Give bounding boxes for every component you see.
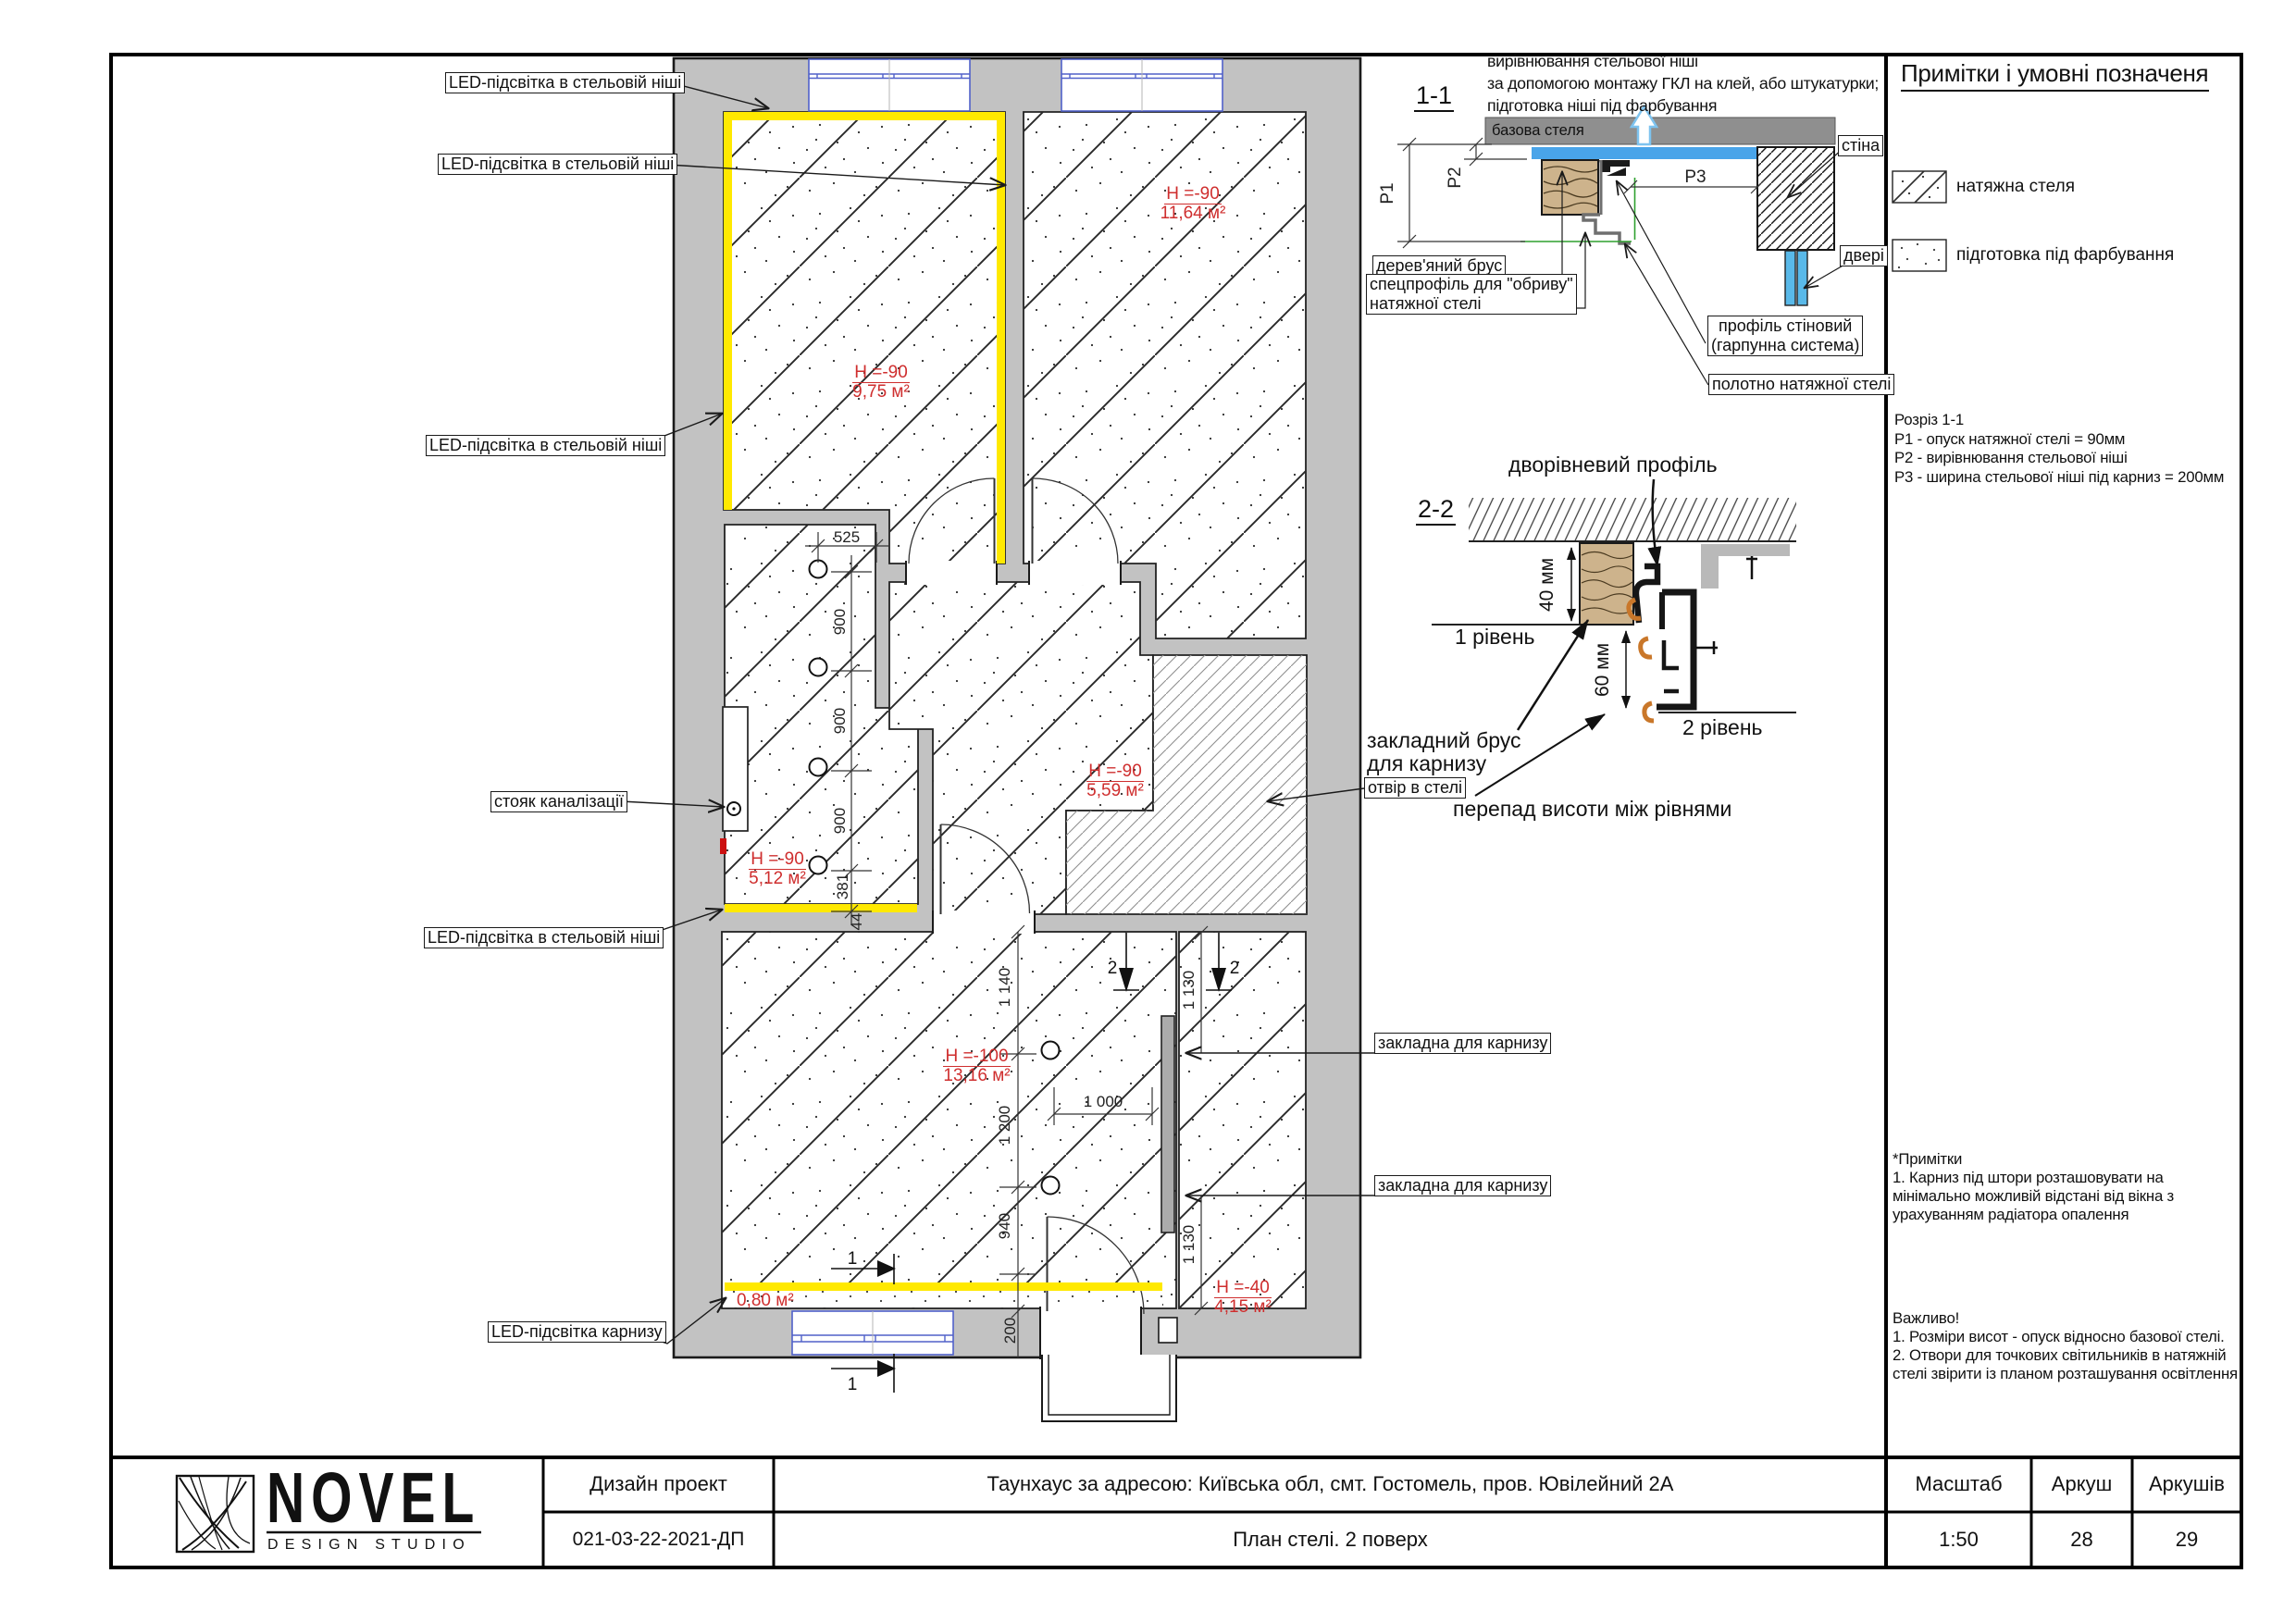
svg-text:900: 900 xyxy=(831,808,849,834)
svg-text:1: 1 xyxy=(848,1249,858,1269)
svg-text:60 мм: 60 мм xyxy=(1592,643,1613,697)
svg-text:200: 200 xyxy=(1001,1318,1019,1344)
svg-text:1 000: 1 000 xyxy=(1084,1093,1123,1110)
svg-text:1 130: 1 130 xyxy=(1180,971,1198,1010)
svg-text:40 мм: 40 мм xyxy=(1536,558,1558,612)
svg-text:1 140: 1 140 xyxy=(996,968,1013,1008)
svg-text:900: 900 xyxy=(831,708,849,734)
svg-text:2: 2 xyxy=(1108,959,1118,978)
svg-text:900: 900 xyxy=(831,609,849,635)
svg-text:Р2: Р2 xyxy=(1446,167,1465,188)
svg-text:525: 525 xyxy=(834,528,860,546)
svg-text:1 130: 1 130 xyxy=(1180,1225,1198,1265)
svg-text:1 200: 1 200 xyxy=(996,1106,1013,1146)
svg-text:2: 2 xyxy=(1230,959,1240,978)
svg-text:1: 1 xyxy=(848,1375,858,1394)
svg-text:940: 940 xyxy=(996,1213,1013,1239)
svg-text:Р3: Р3 xyxy=(1684,167,1706,187)
svg-text:44: 44 xyxy=(848,913,865,931)
svg-text:381: 381 xyxy=(834,873,851,899)
svg-text:Р1: Р1 xyxy=(1378,182,1397,204)
